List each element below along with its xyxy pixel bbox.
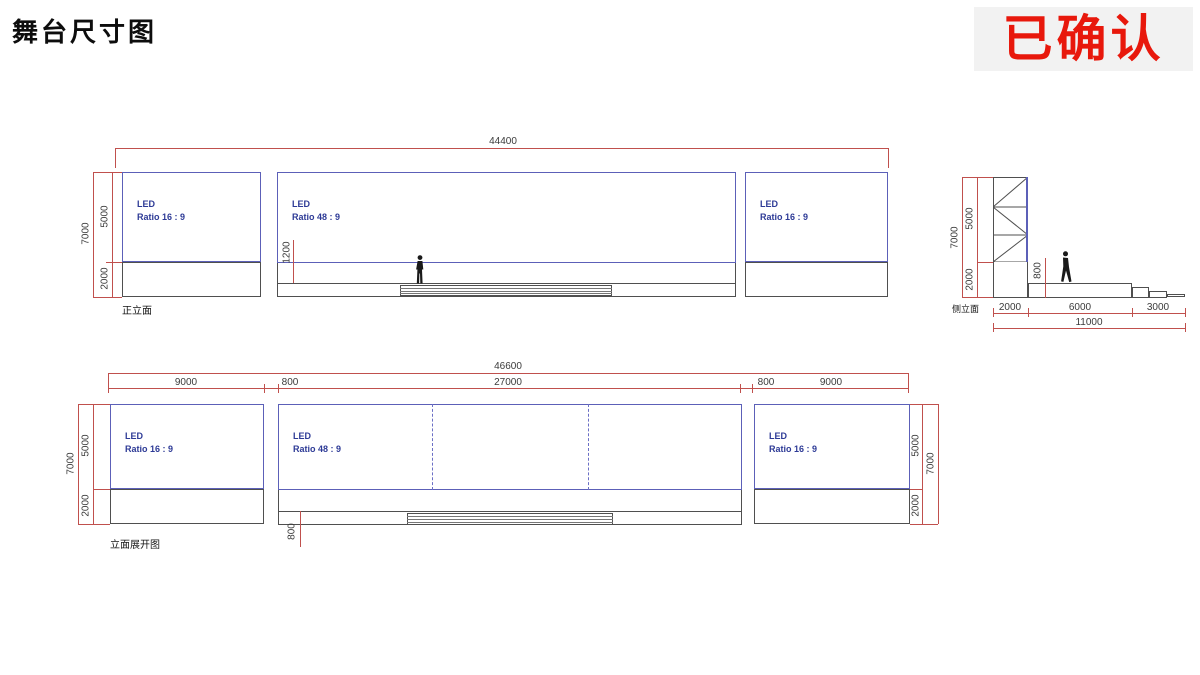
front-dim-line-clearance (293, 240, 294, 283)
side-elevation-caption: 侧立面 (952, 302, 979, 315)
front-led-right-label: LED Ratio 16 : 9 (760, 198, 808, 224)
side-dim-stage-depth: 6000 (1061, 302, 1099, 313)
side-dim-line-stage-height (1045, 258, 1046, 298)
side-dim-line-height-total (962, 177, 963, 298)
expanded-led-divider (432, 404, 433, 490)
front-dim-height-total: 7000 (81, 214, 92, 254)
side-dim-tick (1185, 308, 1186, 317)
front-step-line (400, 293, 612, 294)
side-dim-tick (1132, 308, 1133, 317)
expanded-dim-tick (908, 384, 909, 393)
expanded-dim-line-height-inner-right (922, 404, 923, 524)
expanded-stage-side (741, 490, 742, 511)
side-step-3 (1167, 294, 1185, 297)
front-stage-side (277, 263, 278, 297)
confirmed-stamp-text: 已确认 (1003, 14, 1165, 64)
side-stage-platform (1028, 283, 1132, 298)
front-dim-height-base: 2000 (100, 259, 111, 299)
front-dim-tick (93, 172, 122, 173)
person-figure-standing (413, 255, 427, 284)
confirmed-stamp: 已确认 (974, 7, 1193, 71)
expanded-led-right-label: LED Ratio 16 : 9 (769, 430, 817, 456)
side-dim-tower-depth: 2000 (991, 302, 1029, 313)
expanded-dim-height-total-right: 7000 (926, 444, 937, 484)
slide-canvas: 舞台尺寸图 已确认 44400 7000 5000 2000 LED Ratio… (0, 0, 1200, 675)
expanded-step-line (407, 519, 613, 520)
expanded-dim-line-height-inner-left (93, 404, 94, 524)
expanded-dim-tick (740, 384, 741, 393)
expanded-step-line (407, 522, 613, 523)
front-step-line (400, 288, 612, 289)
expanded-elevation-caption: 立面展开图 (110, 536, 160, 551)
front-dim-tick (115, 148, 116, 168)
front-ground-line (277, 296, 736, 297)
side-dim-tick (962, 177, 993, 178)
front-dim-line-height-total (93, 172, 94, 297)
side-dim-height-led: 5000 (965, 199, 976, 239)
expanded-dim-line-height-total-right (938, 404, 939, 524)
expanded-base-left (110, 489, 264, 524)
front-base-right (745, 262, 888, 297)
front-dim-line-height-inner (112, 172, 113, 297)
front-led-panel-center (277, 172, 736, 263)
expanded-dim-line-height-total-left (78, 404, 79, 524)
side-step-2 (1149, 291, 1167, 298)
expanded-stage-side (278, 490, 279, 511)
front-dim-led-clearance: 1200 (282, 233, 293, 273)
expanded-dim-height-led-left: 5000 (81, 426, 92, 466)
expanded-dim-tick (108, 384, 109, 393)
expanded-dim-tick (78, 404, 110, 405)
truss-bracing (993, 177, 1028, 262)
expanded-base-right (754, 489, 910, 524)
side-dim-tick (993, 323, 994, 332)
expanded-dim-line-segments (108, 388, 908, 389)
expanded-dim-height-base-left: 2000 (81, 486, 92, 526)
front-stage-floor-line (277, 283, 736, 284)
expanded-dim-gap-right: 800 (748, 377, 784, 388)
expanded-led-center-label: LED Ratio 48 : 9 (293, 430, 341, 456)
front-step-line (400, 291, 612, 292)
person-figure-walking (1057, 251, 1073, 283)
side-dim-line-height-inner (977, 177, 978, 298)
expanded-dim-stage-height: 800 (287, 512, 298, 552)
expanded-led-left-label: LED Ratio 16 : 9 (125, 430, 173, 456)
expanded-dim-center-width: 27000 (482, 377, 534, 388)
expanded-dim-tick (264, 384, 265, 393)
front-dim-line-total (115, 148, 888, 149)
front-dim-total-width: 44400 (468, 136, 538, 147)
side-dim-total-depth: 11000 (1067, 317, 1111, 328)
expanded-dim-left-width: 9000 (166, 377, 206, 388)
front-led-center-label: LED Ratio 48 : 9 (292, 198, 340, 224)
front-base-left (122, 262, 261, 297)
expanded-led-divider (588, 404, 589, 490)
expanded-dim-right-width: 9000 (811, 377, 851, 388)
front-dim-height-led: 5000 (100, 197, 111, 237)
front-dim-tick (888, 148, 889, 168)
side-dim-line-depths (993, 313, 1185, 314)
side-step-1 (1132, 287, 1149, 298)
side-dim-height-total: 7000 (950, 218, 961, 258)
expanded-step-line (407, 516, 613, 517)
expanded-dim-tick (93, 489, 110, 490)
expanded-dim-total-width: 46600 (473, 361, 543, 372)
side-dim-steps-depth: 3000 (1139, 302, 1177, 313)
side-dim-stage-height: 800 (1033, 251, 1044, 291)
expanded-dim-height-base-right: 2000 (911, 486, 922, 526)
expanded-led-panel-center (278, 404, 742, 490)
side-led-edge (1026, 177, 1028, 262)
expanded-dim-height-led-right: 5000 (911, 426, 922, 466)
page-title: 舞台尺寸图 (12, 12, 157, 49)
expanded-dim-gap-left: 800 (272, 377, 308, 388)
side-dim-height-base: 2000 (965, 260, 976, 300)
expanded-dim-line-stage-height (300, 511, 301, 547)
expanded-dim-tick (910, 404, 938, 405)
expanded-dim-height-total-left: 7000 (66, 444, 77, 484)
front-stage-side (735, 263, 736, 297)
front-led-left-label: LED Ratio 16 : 9 (137, 198, 185, 224)
side-dim-tick (1185, 323, 1186, 332)
expanded-dim-line-total (108, 373, 908, 374)
side-dim-tick (977, 262, 993, 263)
side-dim-line-total-depth (993, 328, 1185, 329)
front-elevation-caption: 正立面 (122, 302, 152, 317)
